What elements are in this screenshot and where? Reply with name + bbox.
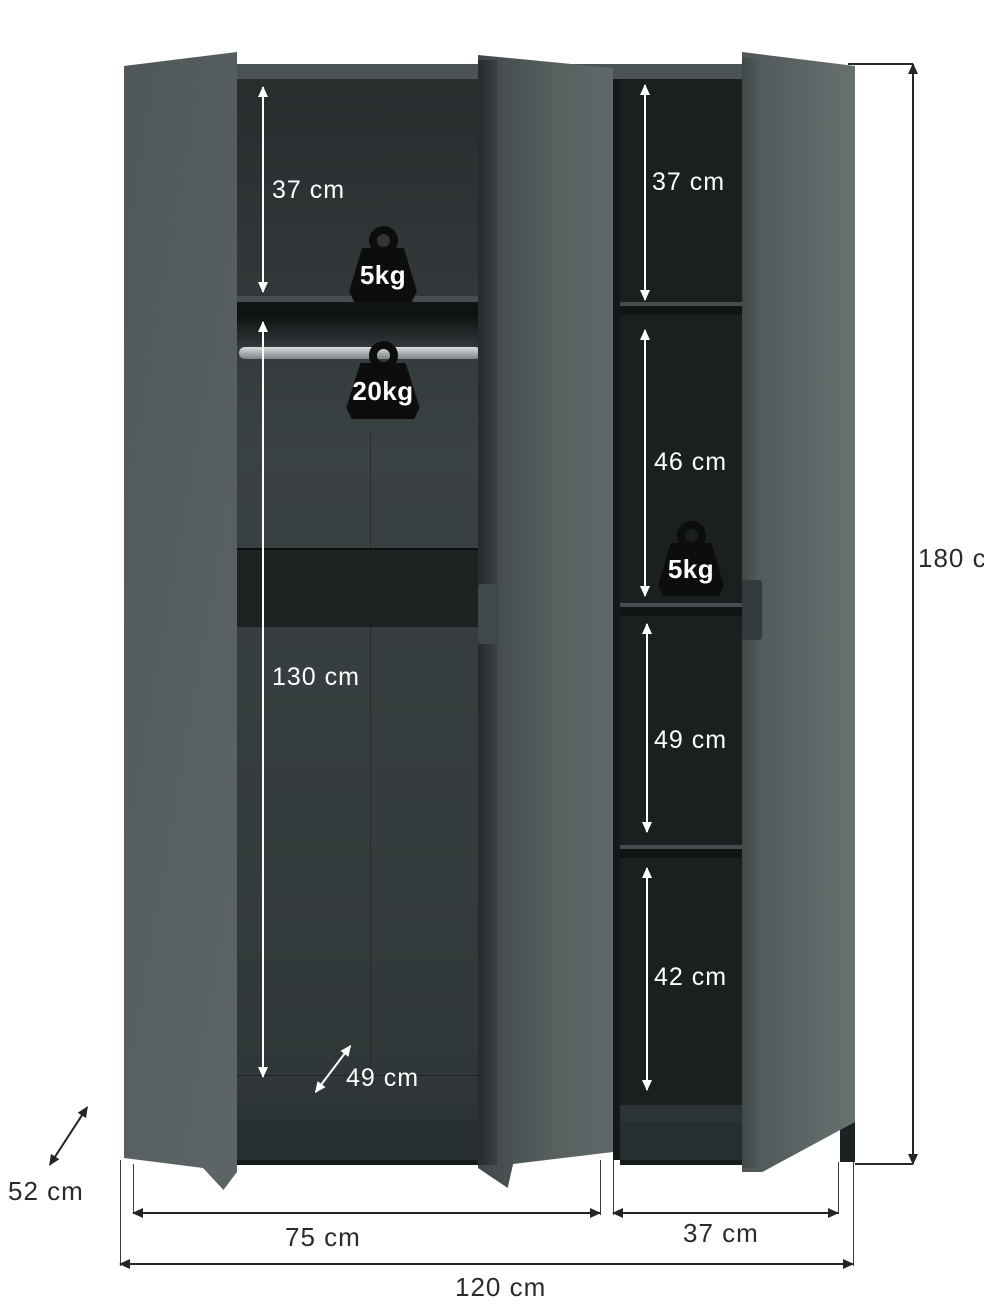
arrow-right-49cm	[646, 624, 648, 832]
left-interior-dark-band	[237, 548, 478, 627]
witness-line	[133, 1164, 134, 1214]
witness-line	[120, 1160, 121, 1266]
right-shelf-1-front	[620, 306, 742, 315]
weight-label: 5kg	[656, 543, 726, 596]
right-door-handle	[742, 580, 762, 640]
arrow-height-180cm	[912, 64, 914, 1164]
witness-line	[600, 1160, 601, 1215]
back-panel-seam	[370, 625, 371, 1075]
arrow-left-37cm	[262, 87, 264, 292]
left-shelf-front	[237, 302, 481, 313]
dim-label-height-180cm: 180 cm	[918, 543, 984, 574]
wardrobe-dimension-diagram: 5kg 20kg 5kg 37 cm 130 cm 49 cm 37 cm 46…	[0, 0, 984, 1315]
witness-line	[853, 1162, 854, 1266]
arrow-left-130cm	[262, 322, 264, 1077]
dim-label-width-37cm: 37 cm	[683, 1218, 759, 1249]
dim-label-width-75cm: 75 cm	[285, 1222, 361, 1253]
dim-label-width-120cm: 120 cm	[455, 1272, 546, 1303]
left-plinth	[237, 1120, 481, 1165]
right-shelf-3-front	[620, 849, 742, 858]
arrow-width-120cm	[120, 1263, 853, 1265]
weight-label: 20kg	[344, 363, 422, 419]
dim-label-right-42cm: 42 cm	[654, 963, 727, 992]
weight-icon-5kg-right-shelf: 5kg	[656, 521, 726, 596]
arrow-width-75cm	[133, 1212, 600, 1214]
weight-icon-20kg-rod: 20kg	[344, 341, 422, 419]
dim-label-depth-52cm: 52 cm	[8, 1176, 84, 1207]
height-dim-bottom-connector	[855, 1163, 913, 1165]
right-shelf-2-front	[620, 607, 742, 616]
center-divider-edge	[613, 79, 620, 1160]
dim-label-right-46cm: 46 cm	[654, 448, 727, 477]
arrow-depth-52cm	[49, 1107, 88, 1166]
right-floor	[620, 1105, 742, 1122]
height-dim-top-connector	[848, 63, 913, 65]
dim-label-left-130cm: 130 cm	[272, 663, 360, 692]
arrow-right-42cm	[646, 868, 648, 1090]
left-door	[124, 52, 237, 1192]
dim-label-left-37cm: 37 cm	[272, 176, 345, 205]
witness-line	[838, 1162, 839, 1214]
dim-label-right-49cm: 49 cm	[654, 726, 727, 755]
witness-line	[613, 1160, 614, 1215]
right-plinth	[620, 1122, 742, 1165]
middle-door-handle	[478, 584, 499, 644]
left-floor	[237, 1103, 481, 1120]
dim-label-left-depth-49cm: 49 cm	[346, 1064, 419, 1093]
back-panel-seam	[370, 430, 371, 548]
arrow-right-46cm	[644, 330, 646, 596]
right-carcass-top-edge	[613, 64, 742, 79]
arrow-width-37cm	[613, 1212, 838, 1214]
weight-label: 5kg	[347, 248, 419, 302]
weight-icon-5kg-left-shelf: 5kg	[347, 226, 419, 302]
dim-label-right-37cm: 37 cm	[652, 168, 725, 197]
arrow-right-37cm	[644, 85, 646, 300]
